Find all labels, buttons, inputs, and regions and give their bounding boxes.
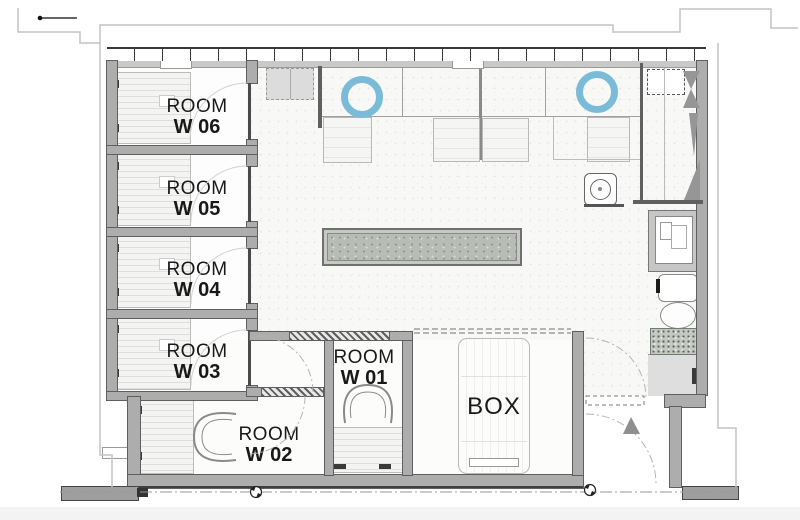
- room-number: W 05: [149, 199, 245, 220]
- closet-wall: [640, 63, 643, 203]
- wall-divider: [107, 228, 257, 236]
- seat: [482, 118, 529, 162]
- shelf-dashed: [647, 69, 685, 95]
- wall-w02-top: [247, 388, 262, 396]
- wall-corridor-top: [250, 332, 290, 340]
- room-name: ROOM: [149, 179, 245, 199]
- room-number: W 06: [149, 117, 245, 138]
- leader-line-icon: [38, 16, 77, 21]
- seat: [433, 118, 480, 162]
- planter-bed: [322, 228, 522, 266]
- boundary-left: [18, 8, 112, 487]
- bath-counter: [648, 210, 700, 272]
- wall-partition: [247, 61, 257, 83]
- ceiling-light-icon: [576, 71, 618, 113]
- room-name: ROOM: [149, 260, 245, 280]
- room-name: ROOM: [316, 348, 412, 368]
- entrance-arrow-icon: [623, 417, 640, 434]
- room-name: ROOM: [149, 97, 245, 117]
- room-label-w06: ROOM W 06: [149, 97, 245, 139]
- room-label-w01: ROOM W 01: [316, 348, 412, 390]
- bed-tray: [469, 458, 519, 467]
- wall-w02-left: [128, 397, 140, 477]
- plant-icon: [650, 328, 700, 355]
- boundary-right: [718, 43, 736, 487]
- fridge-icon: [658, 274, 698, 302]
- wall-strip: [107, 61, 706, 68]
- floor-mark: [692, 368, 696, 384]
- seat: [587, 117, 630, 162]
- room-name: ROOM: [221, 425, 317, 445]
- ceiling-light-icon: [341, 76, 383, 118]
- wall-divider: [107, 310, 257, 318]
- wall-hatched: [290, 332, 390, 340]
- wall-bottom: [128, 475, 583, 488]
- wall-hatched: [262, 388, 323, 396]
- room-number: W 02: [221, 445, 317, 466]
- floor-mark: [334, 464, 346, 469]
- seat: [323, 117, 372, 163]
- room-number: W 03: [149, 362, 245, 383]
- room-number: W 01: [316, 368, 412, 389]
- room-label-w03: ROOM W 03: [149, 342, 245, 384]
- wall-stub: [670, 407, 681, 487]
- door-leaf: [248, 248, 251, 304]
- boundary-top: [100, 9, 798, 43]
- window-sill: [102, 447, 131, 459]
- rotation-marker-icon: [584, 484, 596, 496]
- room-label-w04: ROOM W 04: [149, 260, 245, 302]
- cabinet: [266, 68, 314, 100]
- room-name: ROOM: [149, 342, 245, 362]
- wall-divider: [107, 146, 257, 154]
- bed-w02: [140, 398, 194, 474]
- door-recess: [452, 61, 484, 69]
- door-recess: [160, 61, 192, 69]
- floor-plan: ROOM W 06 ROOM W 05 ROOM W 04 ROOM W 03 …: [0, 0, 800, 520]
- room-label-box: BOX: [446, 393, 542, 421]
- counter-divider: [402, 68, 403, 117]
- wall-corridor-top: [390, 332, 412, 340]
- right-floor-strip: [648, 354, 698, 396]
- kitchen-divider: [633, 200, 703, 204]
- room-label-w05: ROOM W 05: [149, 179, 245, 221]
- wall-right-bottom: [665, 395, 705, 407]
- desk-edge: [553, 159, 640, 160]
- pier: [62, 487, 138, 500]
- partition-stub: [318, 66, 322, 128]
- wall-right: [697, 61, 707, 395]
- wall-box-right: [573, 332, 583, 475]
- floor-mark: [379, 464, 391, 469]
- page-edge: [0, 507, 800, 520]
- sink-icon: [655, 216, 693, 264]
- counter-divider: [545, 68, 546, 117]
- entry-door: [586, 396, 644, 405]
- room-label-w02: ROOM W 02: [221, 425, 317, 467]
- pier: [683, 487, 738, 499]
- closet-line: [664, 63, 665, 203]
- door-leaf: [248, 166, 251, 222]
- basin-icon: [660, 302, 696, 329]
- handle: [656, 279, 660, 293]
- door-leaf: [248, 83, 251, 140]
- counter-mark: [584, 204, 624, 207]
- room-number: W 04: [149, 280, 245, 301]
- plant-icon: [327, 233, 517, 261]
- washer-icon: [584, 173, 617, 206]
- desk-edge: [553, 117, 554, 159]
- pier-cap: [137, 488, 148, 497]
